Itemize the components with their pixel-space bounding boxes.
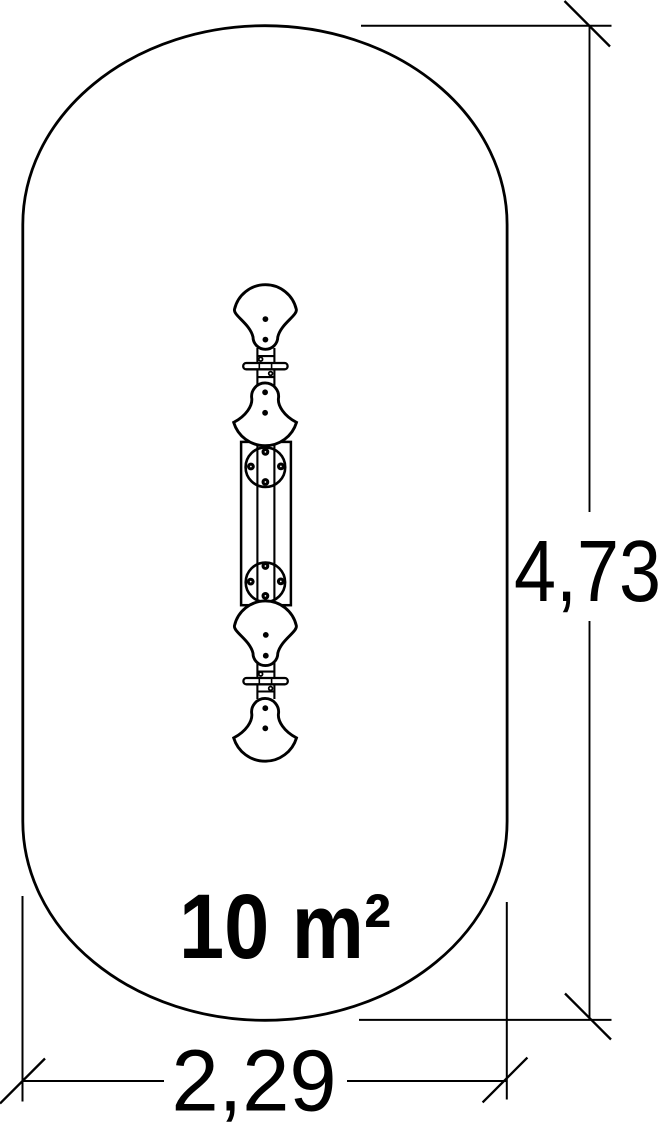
- svg-text:2,29: 2,29: [172, 1033, 337, 1130]
- svg-text:4,73: 4,73: [514, 523, 661, 620]
- svg-text:10 m²: 10 m²: [179, 876, 391, 978]
